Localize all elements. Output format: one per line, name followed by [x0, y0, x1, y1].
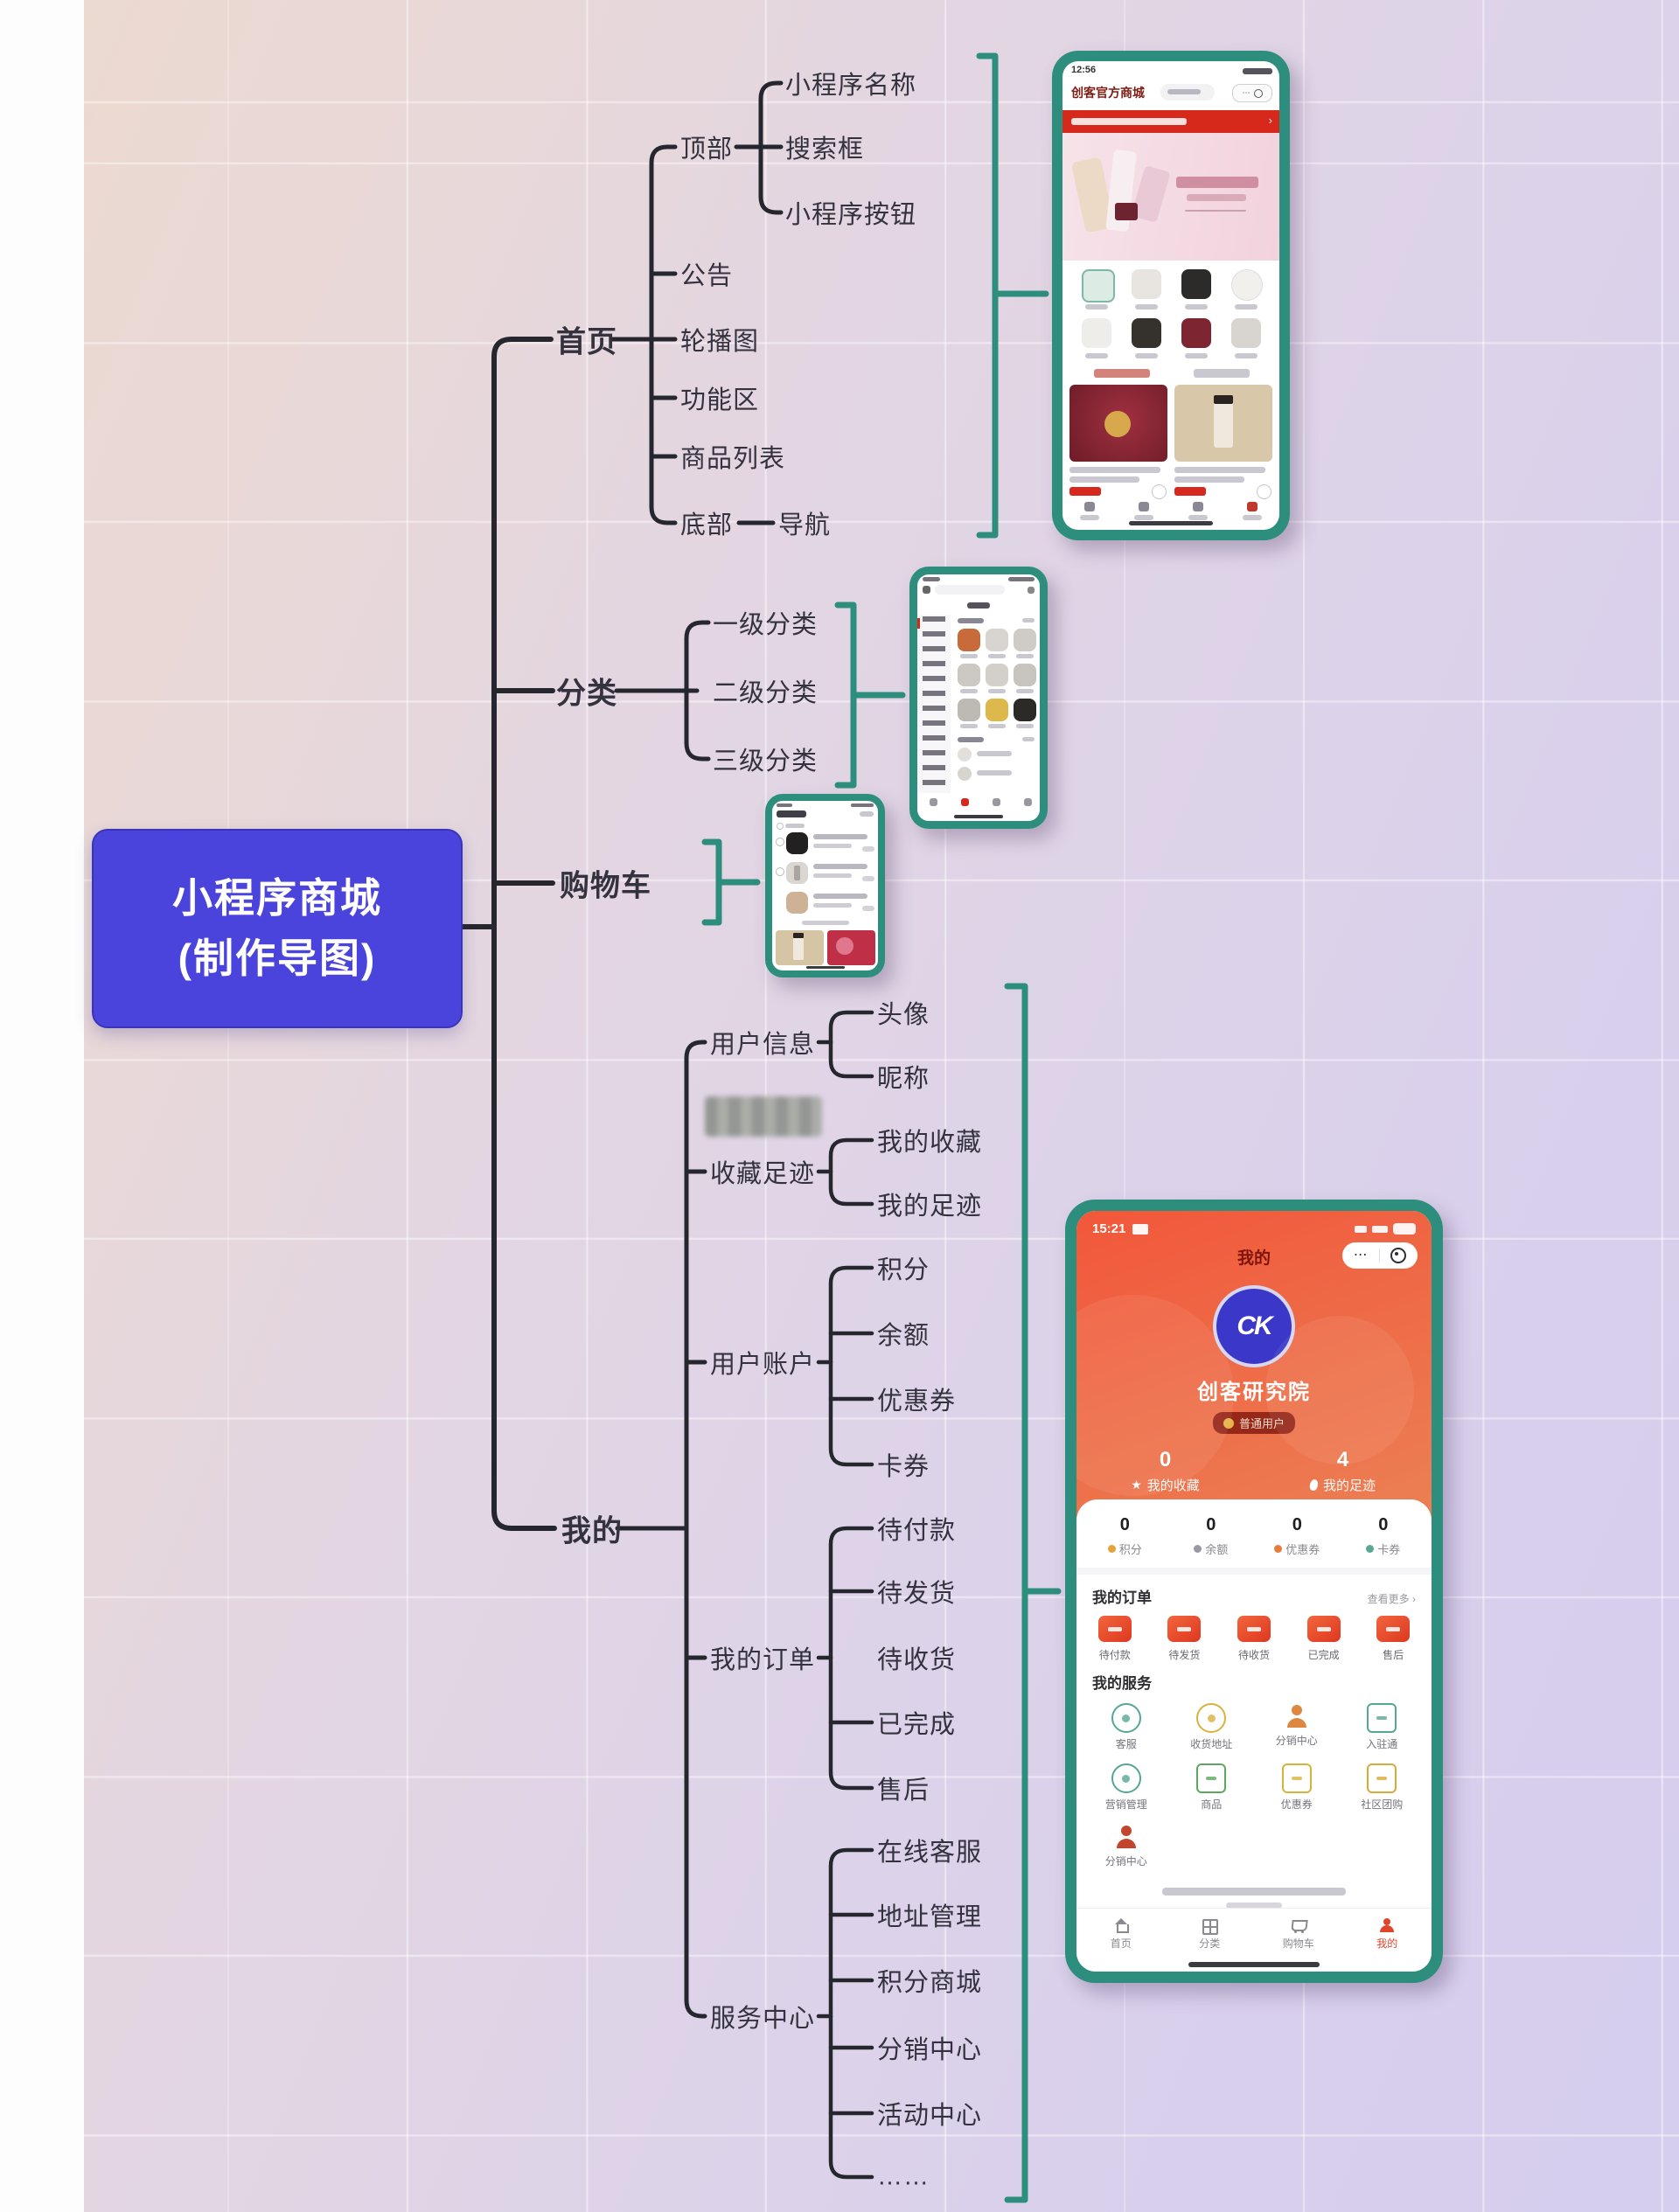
cart-status: [777, 803, 792, 807]
home-notice-bar: ›: [1062, 110, 1279, 133]
profile-status-bar: 15:21: [1076, 1211, 1432, 1236]
node-fav-history[interactable]: 收藏足迹: [710, 1153, 815, 1190]
member-badge-icon: [1223, 1418, 1234, 1429]
package-icon: [1167, 1616, 1201, 1642]
home-indicator: [1129, 521, 1213, 525]
home-icon: [1113, 1918, 1129, 1933]
node-cart[interactable]: 购物车: [560, 862, 651, 905]
profile-nickname: 创客研究院: [1076, 1374, 1432, 1405]
upload-icon: [1367, 1703, 1397, 1733]
node-service-center[interactable]: 服务中心: [710, 1998, 815, 2035]
bag-icon: [1367, 1763, 1397, 1793]
miniapp-capsule-icon: ⋯: [1232, 84, 1272, 102]
node-category[interactable]: 分类: [556, 670, 617, 713]
profile-screenshot: 15:21 我的 ⋯ CK 创客研究院: [1065, 1200, 1443, 1983]
node-activity-center[interactable]: 活动中心: [877, 2095, 982, 2132]
cart-icon: [1291, 1918, 1306, 1933]
profile-stats: 0 ★我的收藏 4 我的足迹: [1076, 1448, 1432, 1494]
ticket-icon: [1282, 1763, 1312, 1793]
redacted-watermark: [705, 1096, 822, 1137]
order-icons-row: 待付款 待发货 待收货 已完成 售后: [1076, 1614, 1432, 1664]
home-app-title: 创客官方商城: [1071, 84, 1145, 101]
node-to-pay[interactable]: 待付款: [877, 1510, 956, 1547]
home-status-time: 12:56: [1071, 65, 1096, 75]
service-grid: 客服 收货地址 分销中心 入驻通 营销管理 商品 优惠券 社区团购 分销中心: [1076, 1700, 1432, 1868]
home-status-icons: [1243, 68, 1272, 74]
node-ellipsis[interactable]: ……: [877, 2163, 930, 2192]
cart-screenshot: [765, 794, 885, 977]
check-icon: [1196, 1763, 1226, 1793]
node-points[interactable]: 积分: [877, 1249, 930, 1286]
profile-home-indicator: [1188, 1962, 1320, 1967]
person-icon: [1284, 1703, 1310, 1729]
node-feature-area[interactable]: 功能区: [680, 379, 759, 416]
truck-icon: [1237, 1616, 1271, 1642]
node-coupons[interactable]: 优惠券: [877, 1381, 956, 1417]
root-title-line2: (制作导图): [178, 929, 377, 989]
home-search-input: [1160, 84, 1215, 101]
root-title-line1: 小程序商城: [172, 868, 382, 929]
node-nickname[interactable]: 昵称: [877, 1058, 930, 1095]
cat-sidebar: [917, 615, 951, 793]
more-icon: ⋯: [1354, 1249, 1368, 1263]
home-hero-banner: [1062, 133, 1279, 261]
grid-icon: [1202, 1918, 1217, 1933]
close-target-icon: [1390, 1248, 1406, 1263]
node-mine[interactable]: 我的: [561, 1507, 623, 1550]
profile-tabbar: 首页 分类 购物车 我的: [1076, 1908, 1432, 1959]
cat-search-input: [935, 585, 1005, 595]
node-bottom[interactable]: 底部: [680, 504, 733, 541]
profile-card: 0积分 0余额 0优惠券 0卡券 我的订单 查看更多 › 待付款 待发货 待收货…: [1076, 1499, 1432, 1972]
profile-status-badge: [1132, 1224, 1148, 1235]
node-my-favorites[interactable]: 我的收藏: [877, 1122, 982, 1158]
user-icon: [1379, 1918, 1395, 1933]
cart-title: [777, 810, 806, 817]
home-section-tab-left: [1094, 369, 1150, 378]
wallet-row: 0积分 0余额 0优惠券 0卡券: [1076, 1499, 1432, 1568]
share-icon: [1113, 1824, 1139, 1850]
avatar: CK: [1213, 1285, 1295, 1367]
profile-status-icons: [1355, 1223, 1416, 1235]
tab-mine: 我的: [1343, 1918, 1432, 1951]
node-carousel[interactable]: 轮播图: [680, 321, 759, 358]
node-distribution[interactable]: 分销中心: [877, 2029, 982, 2066]
coins-icon: [1111, 1763, 1141, 1793]
bulb-icon: [1196, 1703, 1226, 1733]
node-miniapp-button[interactable]: 小程序按钮: [785, 194, 916, 231]
profile-header: 15:21 我的 ⋯ CK 创客研究院: [1076, 1211, 1432, 1522]
cat-menu-icon: [923, 586, 930, 594]
notice-chevron-icon: ›: [1269, 114, 1272, 127]
node-avatar[interactable]: 头像: [877, 994, 930, 1031]
cart-recommend-divider: [802, 921, 849, 925]
miniapp-capsule: ⋯: [1342, 1242, 1418, 1269]
node-user-info[interactable]: 用户信息: [710, 1024, 815, 1061]
node-category-l1[interactable]: 一级分类: [713, 604, 818, 641]
cat-indicator: [954, 815, 1003, 818]
node-cards[interactable]: 卡券: [877, 1446, 930, 1483]
headset-icon: [1376, 1616, 1410, 1642]
node-home[interactable]: 首页: [556, 318, 617, 361]
cart-indicator: [806, 966, 845, 969]
node-balance[interactable]: 余额: [877, 1315, 930, 1352]
tab-home: 首页: [1076, 1918, 1166, 1951]
node-to-ship[interactable]: 待发货: [877, 1573, 956, 1610]
node-aftersale[interactable]: 售后: [877, 1770, 930, 1806]
node-home-top[interactable]: 顶部: [680, 129, 733, 165]
orders-section-title: 我的订单: [1092, 1585, 1152, 1607]
node-category-l2[interactable]: 二级分类: [713, 672, 818, 709]
node-search-box[interactable]: 搜索框: [785, 129, 864, 165]
category-screenshot: [909, 567, 1048, 829]
node-address-mgmt[interactable]: 地址管理: [877, 1896, 982, 1933]
profile-status-time: 15:21: [1092, 1221, 1125, 1236]
root-node[interactable]: 小程序商城 (制作导图): [92, 829, 463, 1028]
home-screenshot: 12:56 创客官方商城 ⋯ ›: [1052, 51, 1290, 540]
node-completed[interactable]: 已完成: [877, 1704, 956, 1741]
node-category-l3[interactable]: 三级分类: [713, 741, 818, 777]
stat-favorites: 0 ★我的收藏: [1076, 1448, 1254, 1494]
home-section-tab-right: [1194, 369, 1250, 378]
node-nav[interactable]: 导航: [778, 504, 831, 541]
mindmap-canvas: 小程序商城 (制作导图) 首页 顶部 小程序名称 搜索框 小程序按钮 公告 轮播…: [0, 0, 1679, 2212]
stat-footprints: 4 我的足迹: [1254, 1448, 1432, 1494]
node-points-mall[interactable]: 积分商城: [877, 1962, 982, 1999]
tab-category: 分类: [1166, 1918, 1255, 1951]
cat-title: [967, 602, 990, 609]
node-online-service[interactable]: 在线客服: [877, 1832, 982, 1868]
node-my-footprints[interactable]: 我的足迹: [877, 1186, 982, 1222]
node-my-orders[interactable]: 我的订单: [710, 1639, 815, 1676]
member-badge: 普通用户: [1213, 1412, 1295, 1434]
node-product-list[interactable]: 商品列表: [680, 438, 785, 475]
tab-cart: 购物车: [1254, 1918, 1343, 1951]
star-icon: ★: [1131, 1478, 1142, 1492]
card-icon: [1307, 1616, 1341, 1642]
orders-see-more: 查看更多 ›: [1368, 1591, 1416, 1606]
service-icon: [1111, 1703, 1141, 1733]
profile-footer-text: [1162, 1888, 1346, 1896]
wallet-icon: [1098, 1616, 1132, 1642]
node-to-receive[interactable]: 待收货: [877, 1639, 956, 1676]
footprint-icon: [1309, 1478, 1320, 1492]
node-miniapp-name[interactable]: 小程序名称: [785, 65, 916, 101]
node-notice[interactable]: 公告: [680, 255, 733, 292]
services-section-title: 我的服务: [1092, 1671, 1152, 1693]
node-user-account[interactable]: 用户账户: [710, 1344, 815, 1381]
cat-status: [923, 577, 940, 581]
